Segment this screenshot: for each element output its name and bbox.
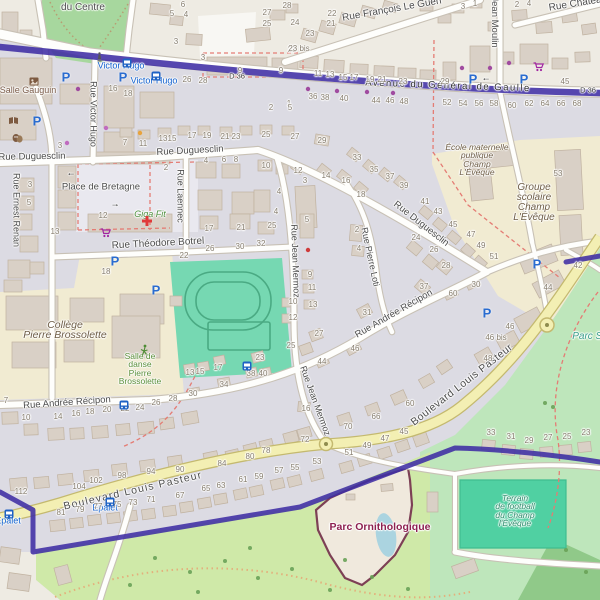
building	[346, 494, 355, 500]
poi-dot	[507, 61, 511, 65]
parking-icon: P	[483, 306, 492, 321]
building	[282, 126, 294, 135]
poi-dot	[65, 141, 69, 145]
tree-icon	[248, 546, 252, 550]
building	[196, 162, 216, 178]
building	[418, 373, 434, 388]
building	[18, 196, 34, 210]
parking-icon: P	[62, 70, 71, 85]
building	[356, 304, 372, 319]
building	[87, 514, 101, 526]
building	[365, 402, 381, 416]
poi-dot	[335, 89, 339, 93]
building	[7, 573, 31, 592]
building	[468, 169, 493, 201]
building	[337, 412, 352, 426]
building	[10, 477, 28, 490]
building	[363, 159, 378, 174]
building	[58, 190, 76, 208]
building	[270, 478, 285, 491]
building	[470, 46, 490, 72]
roundabout-center	[545, 323, 549, 327]
building	[302, 270, 313, 279]
building	[162, 505, 176, 517]
building	[57, 473, 73, 486]
building	[112, 316, 160, 358]
building	[0, 547, 21, 565]
building	[420, 2, 433, 11]
poi-dot	[306, 87, 310, 91]
building	[443, 62, 456, 80]
building	[213, 355, 226, 366]
building	[309, 328, 324, 342]
building	[222, 164, 240, 178]
building	[245, 27, 270, 42]
building	[104, 86, 134, 128]
tree-icon	[196, 590, 200, 594]
map-canvas[interactable]: du CentreRue François Le GuenRue Château…	[0, 0, 600, 600]
parking-icon: P	[533, 257, 542, 272]
building	[48, 428, 65, 441]
area-football-field	[460, 480, 566, 548]
building	[347, 147, 362, 161]
building	[158, 128, 171, 137]
building	[8, 260, 30, 278]
roundabout-center	[324, 442, 328, 446]
tree-icon	[128, 583, 132, 587]
building	[64, 340, 94, 362]
building	[14, 214, 32, 230]
building	[349, 225, 362, 242]
building	[83, 469, 99, 482]
building	[198, 126, 210, 135]
building	[220, 127, 232, 136]
building	[58, 166, 76, 188]
parking-icon: P	[119, 70, 128, 85]
building	[520, 44, 548, 64]
poi-dot	[365, 90, 369, 94]
building	[240, 126, 252, 135]
building	[137, 421, 154, 435]
building	[381, 483, 394, 491]
tree-icon	[188, 570, 192, 574]
building	[249, 485, 264, 497]
poi-dot	[104, 126, 108, 130]
building	[352, 245, 365, 256]
building	[299, 342, 314, 356]
tree-icon	[328, 588, 332, 592]
building	[314, 134, 330, 146]
tree-icon	[290, 567, 294, 571]
building	[0, 58, 52, 104]
building	[70, 428, 85, 440]
building	[49, 519, 65, 532]
building	[198, 190, 222, 210]
building	[270, 10, 285, 20]
tree-icon	[551, 405, 555, 409]
building	[197, 361, 209, 372]
parking-icon: P	[111, 254, 120, 269]
building	[34, 476, 50, 488]
tree-icon	[564, 548, 568, 552]
building	[300, 214, 314, 238]
building	[183, 363, 195, 374]
building	[170, 15, 184, 25]
tree-icon	[370, 575, 374, 579]
building	[324, 59, 345, 72]
building	[559, 444, 573, 455]
building	[106, 512, 120, 524]
building	[116, 423, 131, 435]
building	[414, 279, 430, 295]
building	[287, 475, 302, 488]
tree-icon	[256, 576, 260, 580]
building	[406, 240, 422, 256]
tree-icon	[153, 556, 157, 560]
building	[139, 459, 155, 472]
building	[230, 214, 250, 229]
building	[18, 178, 34, 192]
poi-dot	[138, 131, 142, 135]
building	[178, 126, 190, 135]
area-pitch	[170, 258, 292, 378]
tree-icon	[543, 401, 547, 405]
building	[258, 160, 272, 171]
road	[93, 60, 95, 162]
tree-icon	[584, 570, 588, 574]
building	[140, 92, 174, 118]
building	[120, 128, 132, 137]
building	[304, 300, 315, 309]
map-layers	[0, 0, 600, 600]
building	[197, 497, 212, 509]
parking-icon: P	[152, 283, 161, 298]
building	[2, 412, 18, 425]
building	[581, 23, 596, 35]
tree-icon	[406, 587, 410, 591]
poi-dot	[488, 66, 492, 70]
building	[258, 222, 274, 234]
building	[232, 192, 254, 214]
building	[427, 492, 438, 512]
parking-icon: P	[520, 72, 529, 87]
parking-icon: P	[33, 114, 42, 129]
building	[254, 190, 270, 212]
building	[394, 175, 409, 190]
building	[554, 149, 583, 210]
building	[170, 296, 182, 306]
building	[179, 501, 193, 513]
building	[390, 390, 407, 406]
building	[70, 517, 84, 528]
building	[552, 58, 568, 69]
building	[303, 284, 314, 293]
building	[474, 347, 494, 365]
building	[377, 446, 392, 460]
building	[575, 52, 590, 63]
building	[286, 4, 298, 13]
building	[92, 425, 109, 438]
building	[200, 216, 218, 229]
building	[186, 34, 203, 46]
building	[433, 217, 448, 232]
building	[70, 298, 104, 322]
parking-icon: P	[469, 72, 478, 87]
building	[58, 212, 76, 230]
building	[260, 125, 272, 134]
tree-icon	[223, 559, 227, 563]
building	[233, 488, 248, 500]
building	[436, 359, 452, 375]
building	[4, 280, 22, 292]
building	[181, 411, 199, 426]
building	[578, 441, 592, 452]
building	[419, 205, 434, 220]
building	[436, 259, 452, 275]
tree-icon	[343, 558, 347, 562]
building	[60, 84, 90, 104]
building	[30, 262, 44, 274]
building	[297, 426, 312, 439]
building	[379, 167, 394, 182]
poi-dot	[306, 248, 310, 252]
building	[149, 3, 170, 16]
building	[20, 236, 38, 252]
building	[309, 468, 324, 481]
building	[24, 424, 38, 435]
poi-dot	[76, 87, 80, 91]
building	[213, 493, 228, 505]
building	[141, 508, 155, 520]
poi-dot	[460, 66, 464, 70]
building	[422, 254, 438, 270]
poi-dot	[391, 91, 395, 95]
building	[395, 439, 411, 453]
building	[339, 460, 354, 473]
building	[536, 21, 553, 33]
building	[111, 463, 127, 476]
